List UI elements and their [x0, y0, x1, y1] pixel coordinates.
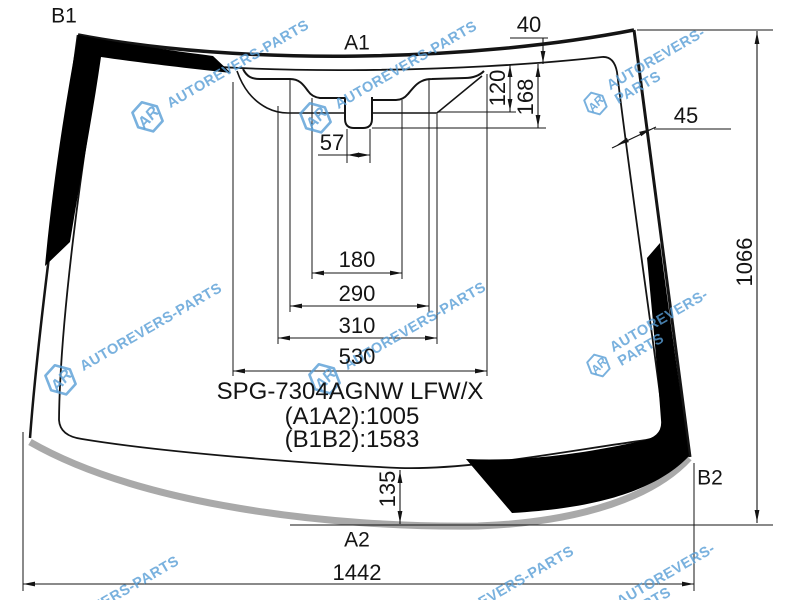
dim-bottom-edge-height: 135: [377, 471, 399, 508]
windshield-technical-drawing: { "drawing": { "part_number": "SPG-7304A…: [0, 0, 800, 600]
blackout-right-bottom-band: [466, 243, 689, 513]
corner-label-a1: A1: [344, 33, 370, 54]
dim-sensor-depth-1: 120: [487, 70, 509, 107]
dim-sensor-depth-2: 168: [515, 79, 537, 116]
sensor-contour-right: [372, 71, 484, 100]
sensor-tab-fill: [345, 97, 372, 128]
blackout-top-left-band: [45, 35, 231, 266]
corner-label-b1: B1: [51, 6, 77, 27]
dim-sensor-w2: 290: [339, 283, 376, 305]
dim-glass-bottom-width: 1442: [333, 562, 382, 584]
dim-glass-height: 1066: [734, 238, 756, 287]
dist-b1b2: (B1B2):1583: [285, 428, 420, 452]
dim-bracket-tab-width: 57: [320, 132, 344, 154]
dim-sensor-w1: 180: [339, 249, 376, 271]
dim-side-band-width: 45: [674, 105, 698, 127]
corner-label-b2: B2: [697, 468, 723, 489]
corner-label-a2: A2: [344, 530, 370, 551]
sensor-contour-left: [243, 69, 345, 98]
drawing-canvas: [0, 0, 800, 600]
dim-sensor-w4: 530: [339, 346, 376, 368]
dim-top-band-width: 40: [517, 14, 541, 36]
dim-sensor-w3: 310: [339, 315, 376, 337]
part-number: SPG-7304AGNW LFW/X: [217, 380, 484, 404]
